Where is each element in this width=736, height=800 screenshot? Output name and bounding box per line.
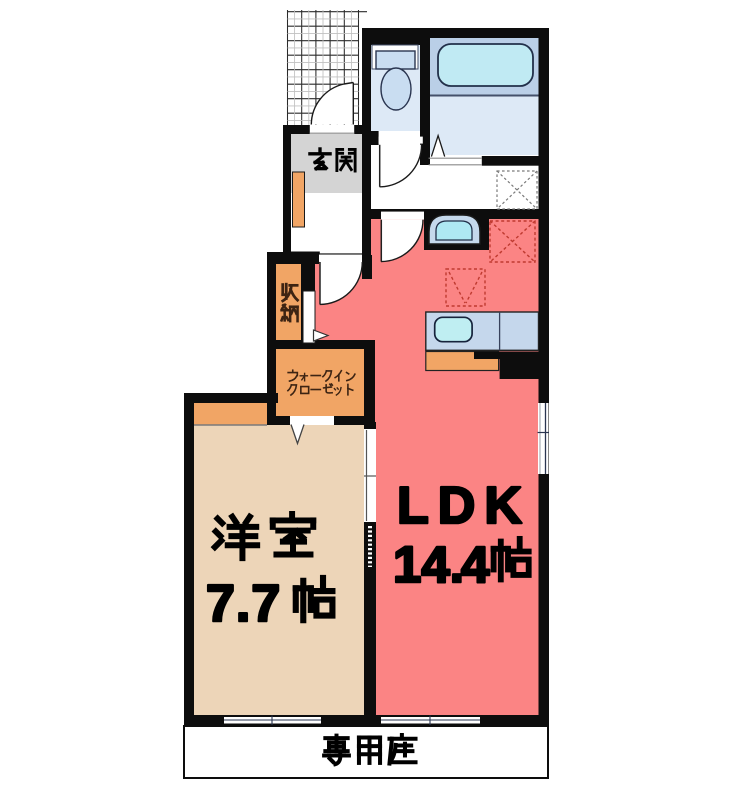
- svg-text:14.: 14.: [393, 536, 464, 593]
- svg-text:4: 4: [461, 536, 490, 593]
- svg-text:7.7: 7.7: [206, 575, 281, 633]
- svg-text:LDK: LDK: [397, 477, 531, 535]
